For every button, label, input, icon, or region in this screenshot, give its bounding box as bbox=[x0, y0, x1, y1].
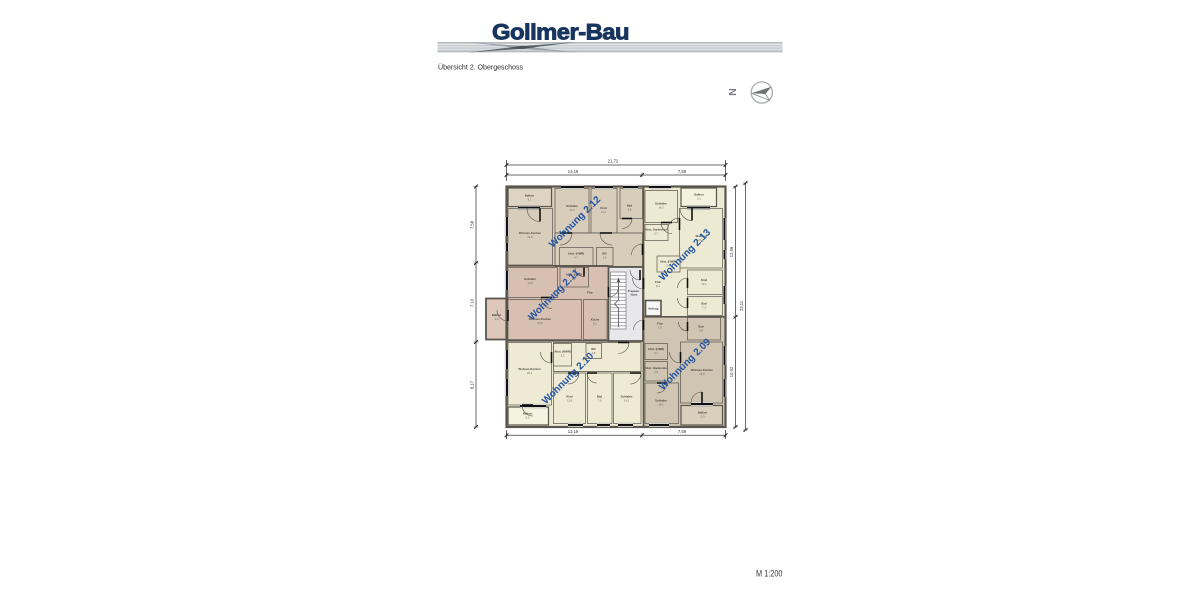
svg-text:7,59: 7,59 bbox=[678, 169, 687, 174]
svg-text:Kind: Kind bbox=[600, 206, 607, 210]
svg-text:7,10: 7,10 bbox=[470, 298, 475, 307]
svg-text:Schlafen: Schlafen bbox=[655, 399, 667, 403]
svg-text:2,7: 2,7 bbox=[654, 232, 658, 236]
svg-text:14,8: 14,8 bbox=[527, 281, 533, 285]
svg-text:haus: haus bbox=[631, 293, 638, 297]
svg-text:Balkon: Balkon bbox=[525, 194, 535, 198]
svg-text:Balkon: Balkon bbox=[492, 313, 502, 317]
svg-text:WC: WC bbox=[591, 347, 596, 351]
svg-text:8,1: 8,1 bbox=[656, 284, 660, 288]
svg-text:Aufzug: Aufzug bbox=[648, 307, 658, 311]
svg-text:4,9: 4,9 bbox=[495, 317, 499, 321]
svg-text:Bad: Bad bbox=[701, 302, 707, 306]
svg-text:Kind: Kind bbox=[701, 278, 708, 282]
svg-text:14,3: 14,3 bbox=[658, 206, 664, 210]
svg-text:8,17: 8,17 bbox=[470, 380, 475, 389]
svg-text:3,1: 3,1 bbox=[654, 351, 658, 355]
svg-text:23,11: 23,11 bbox=[739, 300, 744, 311]
svg-text:25,6: 25,6 bbox=[699, 372, 705, 376]
svg-text:12,6: 12,6 bbox=[567, 399, 573, 403]
svg-text:Balkon: Balkon bbox=[698, 411, 708, 415]
svg-text:6,6: 6,6 bbox=[628, 208, 632, 212]
svg-text:21,72: 21,72 bbox=[608, 159, 619, 164]
svg-text:13,19: 13,19 bbox=[568, 169, 579, 174]
svg-text:24,8: 24,8 bbox=[527, 235, 533, 239]
svg-text:Wohnen-Kochen: Wohnen-Kochen bbox=[691, 368, 713, 372]
svg-text:Gollmer-Bau: Gollmer-Bau bbox=[492, 20, 629, 45]
svg-text:Abst. (HWR): Abst. (HWR) bbox=[554, 350, 570, 354]
svg-text:Schlafen: Schlafen bbox=[566, 204, 578, 208]
svg-text:7,3: 7,3 bbox=[702, 306, 706, 310]
svg-text:Wohnen-Kochen: Wohnen-Kochen bbox=[518, 367, 540, 371]
svg-text:Wohnen-Kochen: Wohnen-Kochen bbox=[519, 231, 541, 235]
svg-text:8,1: 8,1 bbox=[593, 322, 597, 326]
svg-text:N: N bbox=[726, 88, 738, 96]
svg-text:1,8: 1,8 bbox=[592, 351, 596, 355]
svg-text:5,1: 5,1 bbox=[528, 198, 532, 202]
svg-text:Abst. Garderobe: Abst. Garderobe bbox=[645, 366, 667, 370]
svg-text:12,59: 12,59 bbox=[729, 246, 734, 257]
svg-text:Übersicht 2. Obergeschoss: Übersicht 2. Obergeschoss bbox=[438, 63, 523, 72]
svg-text:5,1: 5,1 bbox=[697, 197, 701, 201]
svg-text:7,6: 7,6 bbox=[658, 326, 662, 330]
svg-text:7,58: 7,58 bbox=[470, 220, 475, 229]
svg-text:5,0: 5,0 bbox=[526, 416, 530, 420]
svg-text:M 1:200: M 1:200 bbox=[756, 569, 783, 579]
svg-text:Flur: Flur bbox=[587, 291, 593, 295]
svg-text:25,1: 25,1 bbox=[527, 371, 533, 375]
svg-text:Abst. (HWR): Abst. (HWR) bbox=[648, 347, 664, 351]
svg-text:Abst. (HWR): Abst. (HWR) bbox=[568, 252, 584, 256]
svg-text:3,2: 3,2 bbox=[561, 354, 565, 358]
svg-text:7,59: 7,59 bbox=[678, 429, 687, 434]
svg-text:14,2: 14,2 bbox=[624, 399, 630, 403]
svg-text:Küche: Küche bbox=[591, 318, 600, 322]
svg-text:Balkon: Balkon bbox=[694, 193, 704, 197]
svg-text:7,9: 7,9 bbox=[598, 399, 602, 403]
svg-text:Bad: Bad bbox=[627, 204, 633, 208]
svg-text:Schlafen: Schlafen bbox=[524, 277, 536, 281]
svg-text:WC: WC bbox=[602, 252, 607, 256]
svg-text:26,9: 26,9 bbox=[537, 321, 543, 325]
svg-text:6,8: 6,8 bbox=[699, 329, 703, 333]
svg-text:10,52: 10,52 bbox=[729, 366, 734, 377]
svg-text:14,1: 14,1 bbox=[658, 403, 664, 407]
svg-text:1,9: 1,9 bbox=[603, 256, 607, 260]
svg-text:11,2: 11,2 bbox=[601, 210, 607, 214]
svg-text:3,6: 3,6 bbox=[654, 370, 658, 374]
svg-text:Abst. Garderobe: Abst. Garderobe bbox=[645, 228, 667, 232]
svg-text:Bad: Bad bbox=[698, 325, 704, 329]
svg-text:12,1: 12,1 bbox=[701, 282, 707, 286]
svg-text:Schlafen: Schlafen bbox=[655, 202, 667, 206]
svg-text:Kind: Kind bbox=[566, 395, 573, 399]
svg-text:4,7: 4,7 bbox=[574, 256, 578, 260]
svg-text:Bad: Bad bbox=[597, 395, 603, 399]
svg-text:13,19: 13,19 bbox=[568, 429, 579, 434]
svg-text:Schlafen: Schlafen bbox=[621, 395, 633, 399]
svg-text:5,0: 5,0 bbox=[701, 415, 705, 419]
svg-text:14,6: 14,6 bbox=[569, 208, 575, 212]
